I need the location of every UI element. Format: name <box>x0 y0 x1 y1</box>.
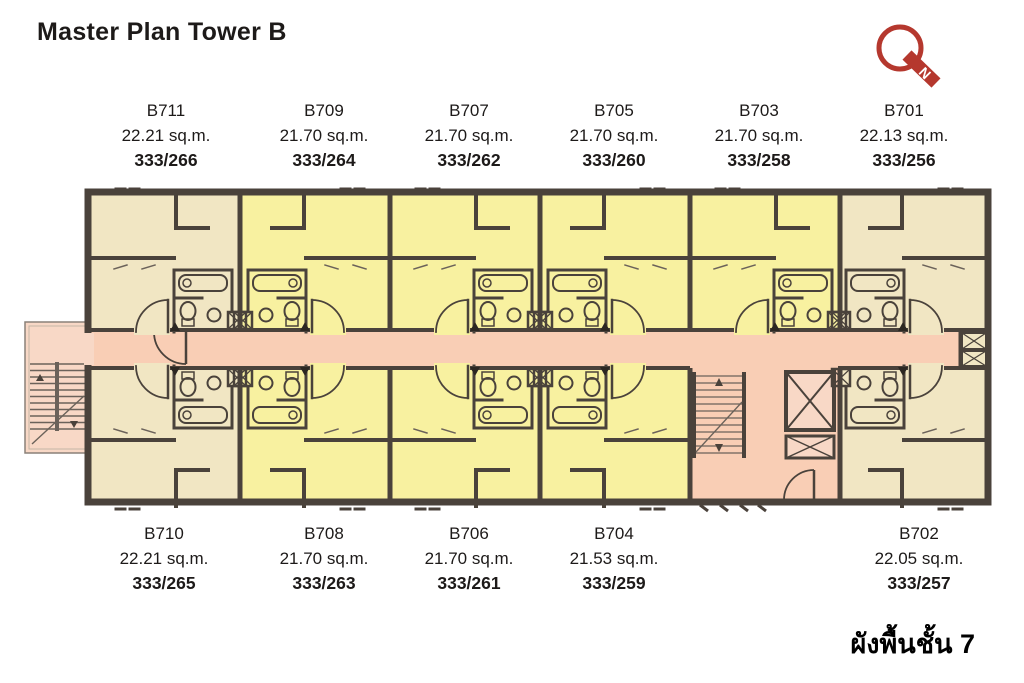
unit-label-b709: B709 21.70 sq.m. 333/264 <box>248 98 400 173</box>
unit-area: 21.70 sq.m. <box>248 546 400 571</box>
unit-code: 333/256 <box>828 148 980 173</box>
stairwell-opening <box>84 333 94 365</box>
unit-area: 21.53 sq.m. <box>538 546 690 571</box>
unit-area: 21.70 sq.m. <box>248 123 400 148</box>
unit-area: 21.70 sq.m. <box>683 123 835 148</box>
unit-code: 333/257 <box>843 571 995 596</box>
unit-code: 333/259 <box>538 571 690 596</box>
unit-code: 333/261 <box>393 571 545 596</box>
unit-number: B702 <box>843 521 995 546</box>
unit-label-b705: B705 21.70 sq.m. 333/260 <box>538 98 690 173</box>
unit-area: 22.13 sq.m. <box>828 123 980 148</box>
corridor <box>88 330 988 368</box>
unit-area: 22.21 sq.m. <box>90 123 242 148</box>
unit-label-b701: B701 22.13 sq.m. 333/256 <box>828 98 980 173</box>
unit-label-b704: B704 21.53 sq.m. 333/259 <box>538 521 690 596</box>
unit-number: B703 <box>683 98 835 123</box>
unit-code: 333/264 <box>248 148 400 173</box>
corridor-end-shafts <box>960 332 986 366</box>
unit-number: B708 <box>248 521 400 546</box>
unit-area: 22.21 sq.m. <box>88 546 240 571</box>
unit-number: B701 <box>828 98 980 123</box>
floor-caption: ผังพื้นชั้น 7 <box>850 622 975 665</box>
unit-code: 333/258 <box>683 148 835 173</box>
unit-label-b707: B707 21.70 sq.m. 333/262 <box>393 98 545 173</box>
unit-label-b702: B702 22.05 sq.m. 333/257 <box>843 521 995 596</box>
unit-code: 333/265 <box>88 571 240 596</box>
unit-number: B704 <box>538 521 690 546</box>
unit-label-b710: B710 22.21 sq.m. 333/265 <box>88 521 240 596</box>
unit-label-b706: B706 21.70 sq.m. 333/261 <box>393 521 545 596</box>
unit-label-b708: B708 21.70 sq.m. 333/263 <box>248 521 400 596</box>
unit-number: B705 <box>538 98 690 123</box>
unit-code: 333/266 <box>90 148 242 173</box>
unit-area: 21.70 sq.m. <box>538 123 690 148</box>
unit-number: B711 <box>90 98 242 123</box>
unit-area: 21.70 sq.m. <box>393 123 545 148</box>
unit-number: B707 <box>393 98 545 123</box>
unit-code: 333/262 <box>393 148 545 173</box>
unit-area: 22.05 sq.m. <box>843 546 995 571</box>
unit-label-b703: B703 21.70 sq.m. 333/258 <box>683 98 835 173</box>
unit-code: 333/263 <box>248 571 400 596</box>
left-stairwell <box>25 322 91 453</box>
floor-plan-page: Master Plan Tower B N <box>0 0 1024 683</box>
unit-floor-b702 <box>840 368 988 502</box>
unit-area: 21.70 sq.m. <box>393 546 545 571</box>
unit-code: 333/260 <box>538 148 690 173</box>
unit-number: B710 <box>88 521 240 546</box>
unit-label-b711: B711 22.21 sq.m. 333/266 <box>90 98 242 173</box>
entrance-ticks <box>700 505 766 511</box>
unit-number: B709 <box>248 98 400 123</box>
unit-number: B706 <box>393 521 545 546</box>
